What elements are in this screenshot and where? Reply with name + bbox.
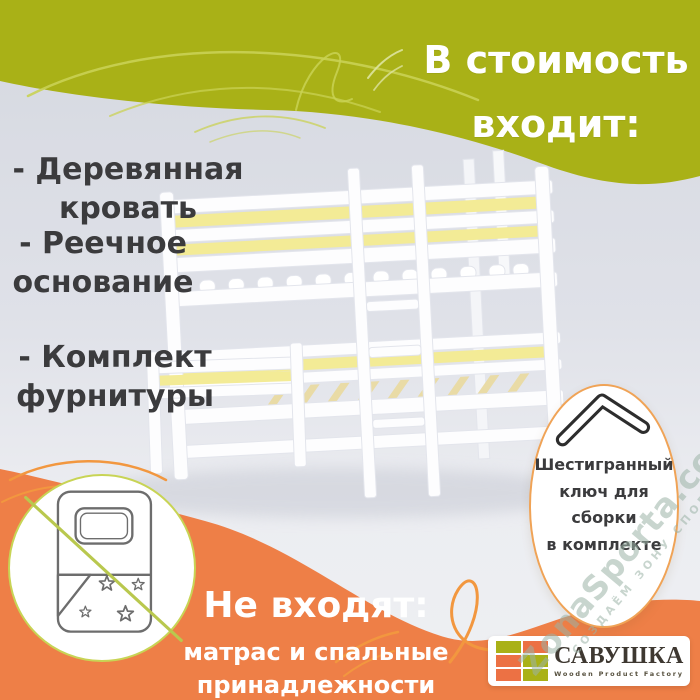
not-included-line: принадлежности xyxy=(172,669,460,700)
item-text: основание xyxy=(0,263,206,302)
logo-tile xyxy=(523,669,548,681)
badge-text-line: Шестигранный xyxy=(531,452,677,479)
included-item-wooden-bed: - Деревянная кровать xyxy=(8,150,248,228)
item-text: - Реечное xyxy=(0,224,206,263)
prohibited-slash xyxy=(26,498,182,641)
not-included-heading: Не входят: xyxy=(172,584,460,628)
no-bedding-badge xyxy=(8,474,196,662)
logo-tile-grid-icon xyxy=(496,641,548,681)
not-included-section: Не входят: матрас и спальные принадлежно… xyxy=(172,584,460,700)
logo-tagline: Wooden Product Factory xyxy=(554,670,684,678)
product-card: В стоимость входит: - Деревянная кровать… xyxy=(0,0,700,700)
logo-tile xyxy=(496,641,521,653)
hex-key-badge: Шестигранный ключ для сборки в комплекте xyxy=(529,384,679,628)
badge-text-line: ключ для xyxy=(531,479,677,506)
title-line-1: В стоимость xyxy=(408,28,700,92)
logo-brand-name: САВУШКА xyxy=(554,644,684,668)
included-item-hardware-kit: - Комплект фурнитуры xyxy=(5,338,225,416)
badge-text-line: в комплекте xyxy=(531,532,677,559)
logo-tile xyxy=(496,655,521,667)
logo-tile xyxy=(523,641,548,653)
bedding-crossed-out-icon xyxy=(10,476,194,660)
hex-key-icon xyxy=(549,392,659,450)
page-title: В стоимость входит: xyxy=(408,28,700,156)
item-text: - Деревянная xyxy=(8,150,248,189)
included-item-slatted-base: - Реечное основание xyxy=(0,224,206,302)
logo-tile xyxy=(496,669,521,681)
hex-key-badge-text: Шестигранный ключ для сборки в комплекте xyxy=(531,452,677,558)
brand-logo: САВУШКА Wooden Product Factory xyxy=(488,636,690,686)
badge-text-line: сборки xyxy=(531,505,677,532)
item-text: кровать xyxy=(8,189,248,228)
item-text: - Комплект xyxy=(5,338,225,377)
title-line-2: входит: xyxy=(408,92,700,156)
item-text: фурнитуры xyxy=(5,377,225,416)
logo-tile xyxy=(523,655,548,667)
not-included-line: матрас и спальные xyxy=(172,636,460,669)
